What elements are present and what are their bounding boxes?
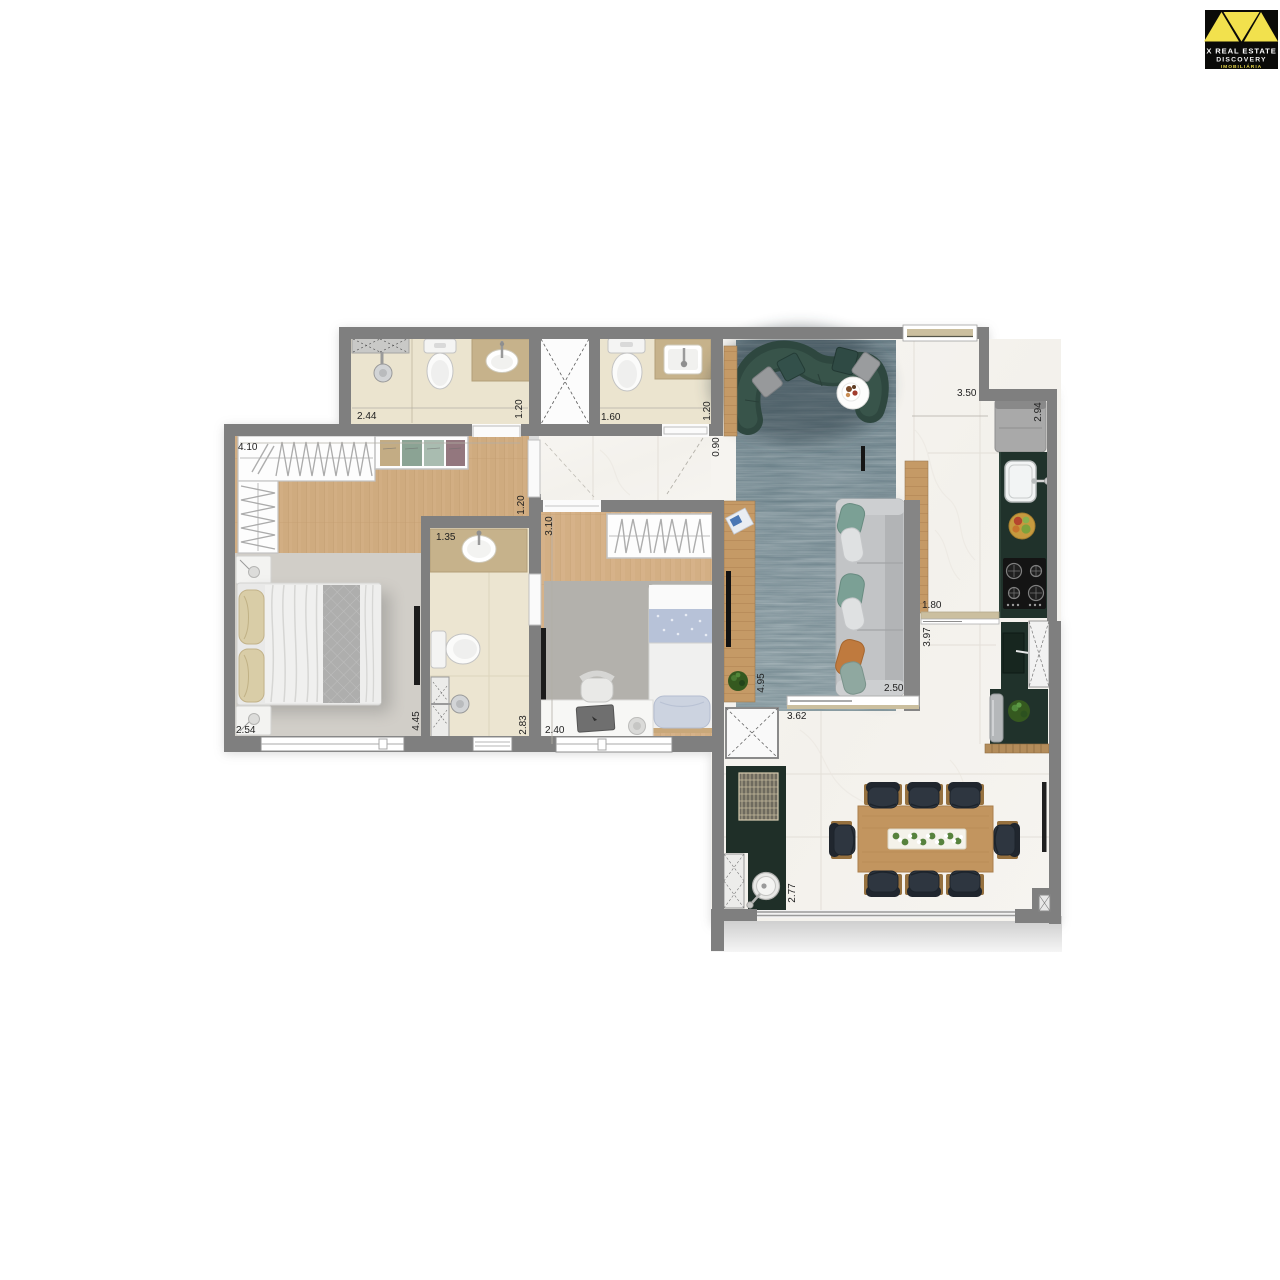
svg-text:2.94: 2.94 — [1033, 402, 1044, 422]
svg-text:3.97: 3.97 — [922, 627, 933, 647]
svg-text:2.77: 2.77 — [787, 883, 798, 903]
svg-text:4.95: 4.95 — [756, 673, 767, 693]
svg-text:1.20: 1.20 — [516, 495, 527, 515]
svg-text:3.62: 3.62 — [787, 711, 807, 722]
svg-text:4.45: 4.45 — [411, 711, 422, 731]
svg-text:3.10: 3.10 — [544, 516, 555, 536]
svg-text:2.40: 2.40 — [545, 725, 565, 736]
svg-text:1.20: 1.20 — [514, 399, 525, 419]
svg-text:DISCOVERY: DISCOVERY — [1216, 57, 1267, 64]
svg-text:IMOBILIÁRIA: IMOBILIÁRIA — [1221, 63, 1262, 70]
svg-text:1.60: 1.60 — [601, 412, 621, 423]
svg-text:4.10: 4.10 — [238, 442, 258, 453]
svg-text:0.90: 0.90 — [711, 437, 722, 457]
svg-text:1.35: 1.35 — [436, 532, 456, 543]
svg-text:3.50: 3.50 — [957, 388, 977, 399]
svg-text:2.50: 2.50 — [884, 683, 904, 694]
svg-text:2.83: 2.83 — [518, 715, 529, 735]
svg-text:2.44: 2.44 — [357, 411, 377, 422]
svg-text:1.80: 1.80 — [922, 600, 942, 611]
svg-text:X REAL ESTATE: X REAL ESTATE — [1206, 47, 1276, 56]
svg-text:1.20: 1.20 — [702, 401, 713, 421]
svg-text:2.54: 2.54 — [236, 725, 256, 736]
